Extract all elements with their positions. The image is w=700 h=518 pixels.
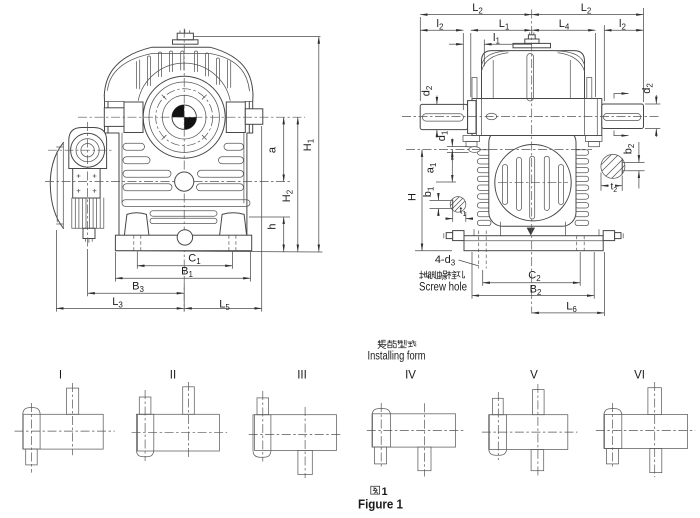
svg-text:Figure 1: Figure 1 [358,498,403,512]
svg-text:H: H [407,193,419,201]
svg-text:h: h [267,223,279,229]
svg-text:V: V [530,370,538,382]
svg-text:VI: VI [634,370,645,382]
svg-text:III: III [297,370,307,382]
svg-text:Screw hole: Screw hole [419,282,467,294]
svg-text:II: II [170,370,176,382]
svg-text:IV: IV [405,370,416,382]
svg-text:Installing form: Installing form [368,351,426,363]
svg-text:1: 1 [381,486,387,498]
svg-text:I: I [59,370,62,382]
svg-text:a: a [267,146,279,153]
